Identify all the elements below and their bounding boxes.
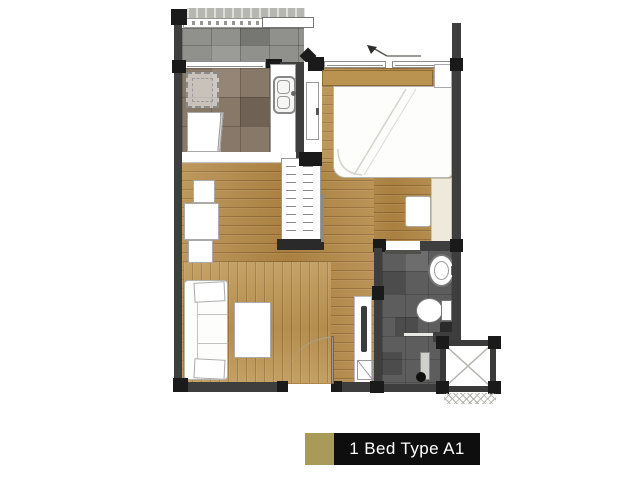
wall-post (172, 60, 186, 73)
corner-post-top-left (171, 9, 187, 25)
bath-tile-shade (382, 271, 405, 294)
kitchen-table (187, 112, 221, 152)
ac-ledge-cross (446, 346, 490, 386)
sofa-cushion-line (198, 314, 227, 315)
corner-post-bottom-left (173, 378, 188, 392)
basin-bowl (434, 261, 449, 280)
floorplan-canvas (0, 0, 640, 480)
unit-type-label: 1 Bed Type A1 (349, 439, 464, 459)
wall-post (370, 381, 384, 393)
dining-chair-top (193, 180, 215, 203)
cabinet-handle (316, 108, 319, 115)
sink-basin-bottom (277, 96, 290, 109)
bathroom-left-wall (374, 248, 382, 392)
toilet-tank (441, 300, 452, 321)
bath-tile-shade (382, 352, 402, 375)
shower-drain (416, 372, 426, 382)
wardrobe-sliding-door (321, 194, 324, 242)
kitchen-tile-shade (240, 97, 269, 126)
bathroom-door-leaf (385, 250, 421, 254)
balcony-railing (183, 18, 267, 28)
caption-bar: 1 Bed Type A1 (334, 433, 480, 465)
sofa-cushion-line (198, 343, 227, 344)
dining-table (184, 203, 219, 240)
kitchen-right-wall (296, 62, 304, 162)
dining-chair-bottom (188, 240, 213, 263)
sink-basin-top (277, 80, 290, 94)
sofa-pillow-bottom (193, 358, 225, 380)
corner-post-top-right (450, 58, 463, 71)
balcony-tile-shade (211, 45, 240, 62)
bathroom-bottom-wall (382, 384, 440, 392)
bathroom-corner-post (450, 239, 463, 252)
coffee-table (234, 302, 271, 358)
entrance-door-leaf (331, 336, 334, 384)
sofa (184, 280, 228, 380)
bottom-wall-left (174, 382, 286, 392)
wardrobe-bottom-cap (277, 239, 324, 250)
media-equipment (357, 360, 373, 380)
ledge-post (488, 336, 501, 349)
balcony-tile-shade (240, 28, 269, 45)
wardrobe-hangers-left (286, 166, 296, 236)
toilet-bowl (416, 298, 443, 323)
window-opening-arrow (363, 44, 425, 64)
bed-headboard (322, 70, 433, 86)
floorplan-page: { "caption": { "text": "1 Bed Type A1", … (0, 0, 640, 480)
caption: 1 Bed Type A1 (305, 433, 480, 465)
ledge-post (436, 336, 449, 349)
wall-post (372, 286, 384, 300)
tv (361, 306, 367, 352)
bed (333, 86, 452, 178)
ledge-louvre (444, 393, 496, 404)
right-wall (452, 23, 461, 349)
kitchen-threshold (182, 152, 296, 163)
bedroom-vanity (431, 178, 452, 242)
kitchen-sink (273, 76, 296, 114)
washing-machine-provision (186, 72, 219, 108)
sofa-pillow-top (193, 281, 225, 303)
bedroom-stool (405, 196, 431, 227)
caption-color-swatch (305, 433, 334, 465)
washing-machine-provision-inner (192, 78, 213, 102)
duvet-fold-lines (334, 87, 453, 179)
wardrobe-hangers-right (303, 166, 313, 236)
balcony-planter-bench (262, 17, 314, 28)
wall-post (308, 57, 324, 71)
wardrobe-top-post (299, 152, 322, 166)
